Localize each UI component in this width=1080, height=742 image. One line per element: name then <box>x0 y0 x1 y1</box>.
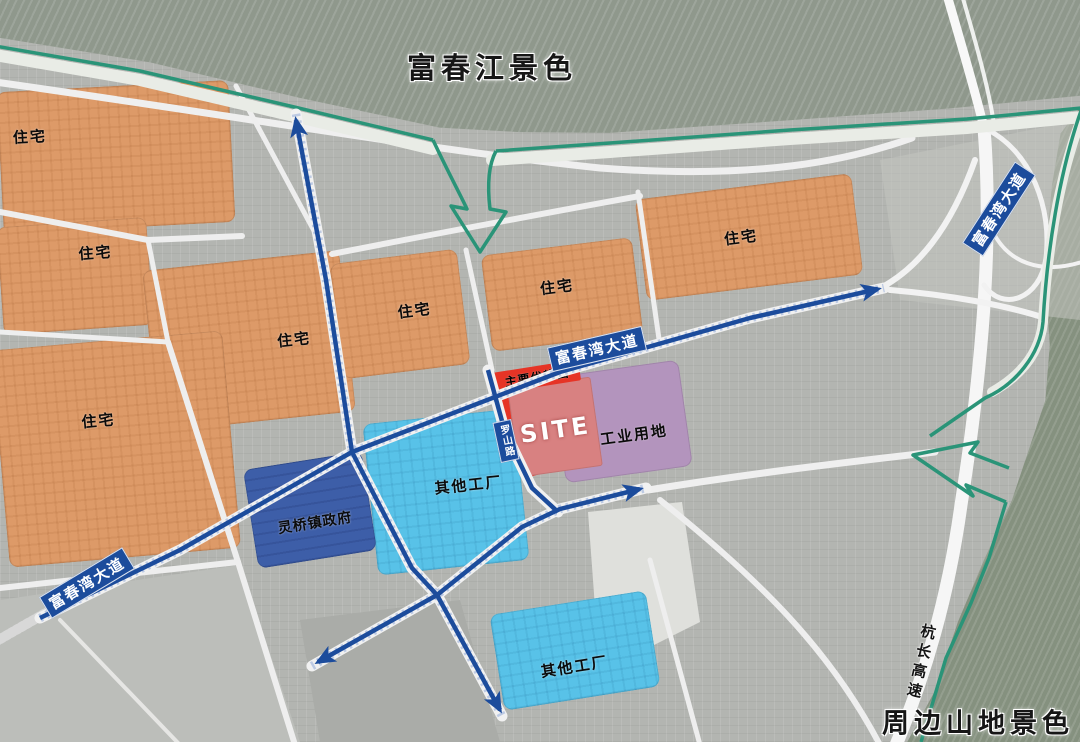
river-scenery-title: 富春江景色 <box>407 45 577 87</box>
luoshan-label: 罗山路 <box>492 419 519 463</box>
road-labels: 富春湾大道富春湾大道富春湾大道罗山路杭长高速 <box>0 0 1080 742</box>
expressway-label: 杭长高速 <box>902 622 940 705</box>
avenue-label-sw: 富春湾大道 <box>39 547 135 618</box>
avenue-label-mid: 富春湾大道 <box>547 326 647 372</box>
mountain-scenery-title: 周边山地景色 <box>882 702 1074 741</box>
avenue-label-ne: 富春湾大道 <box>962 162 1036 257</box>
site-analysis-map: 住宅住宅住宅住宅住宅住宅住宅其他工厂其他工厂灵桥镇政府工业用地SITE主要优势面 <box>0 0 1080 742</box>
